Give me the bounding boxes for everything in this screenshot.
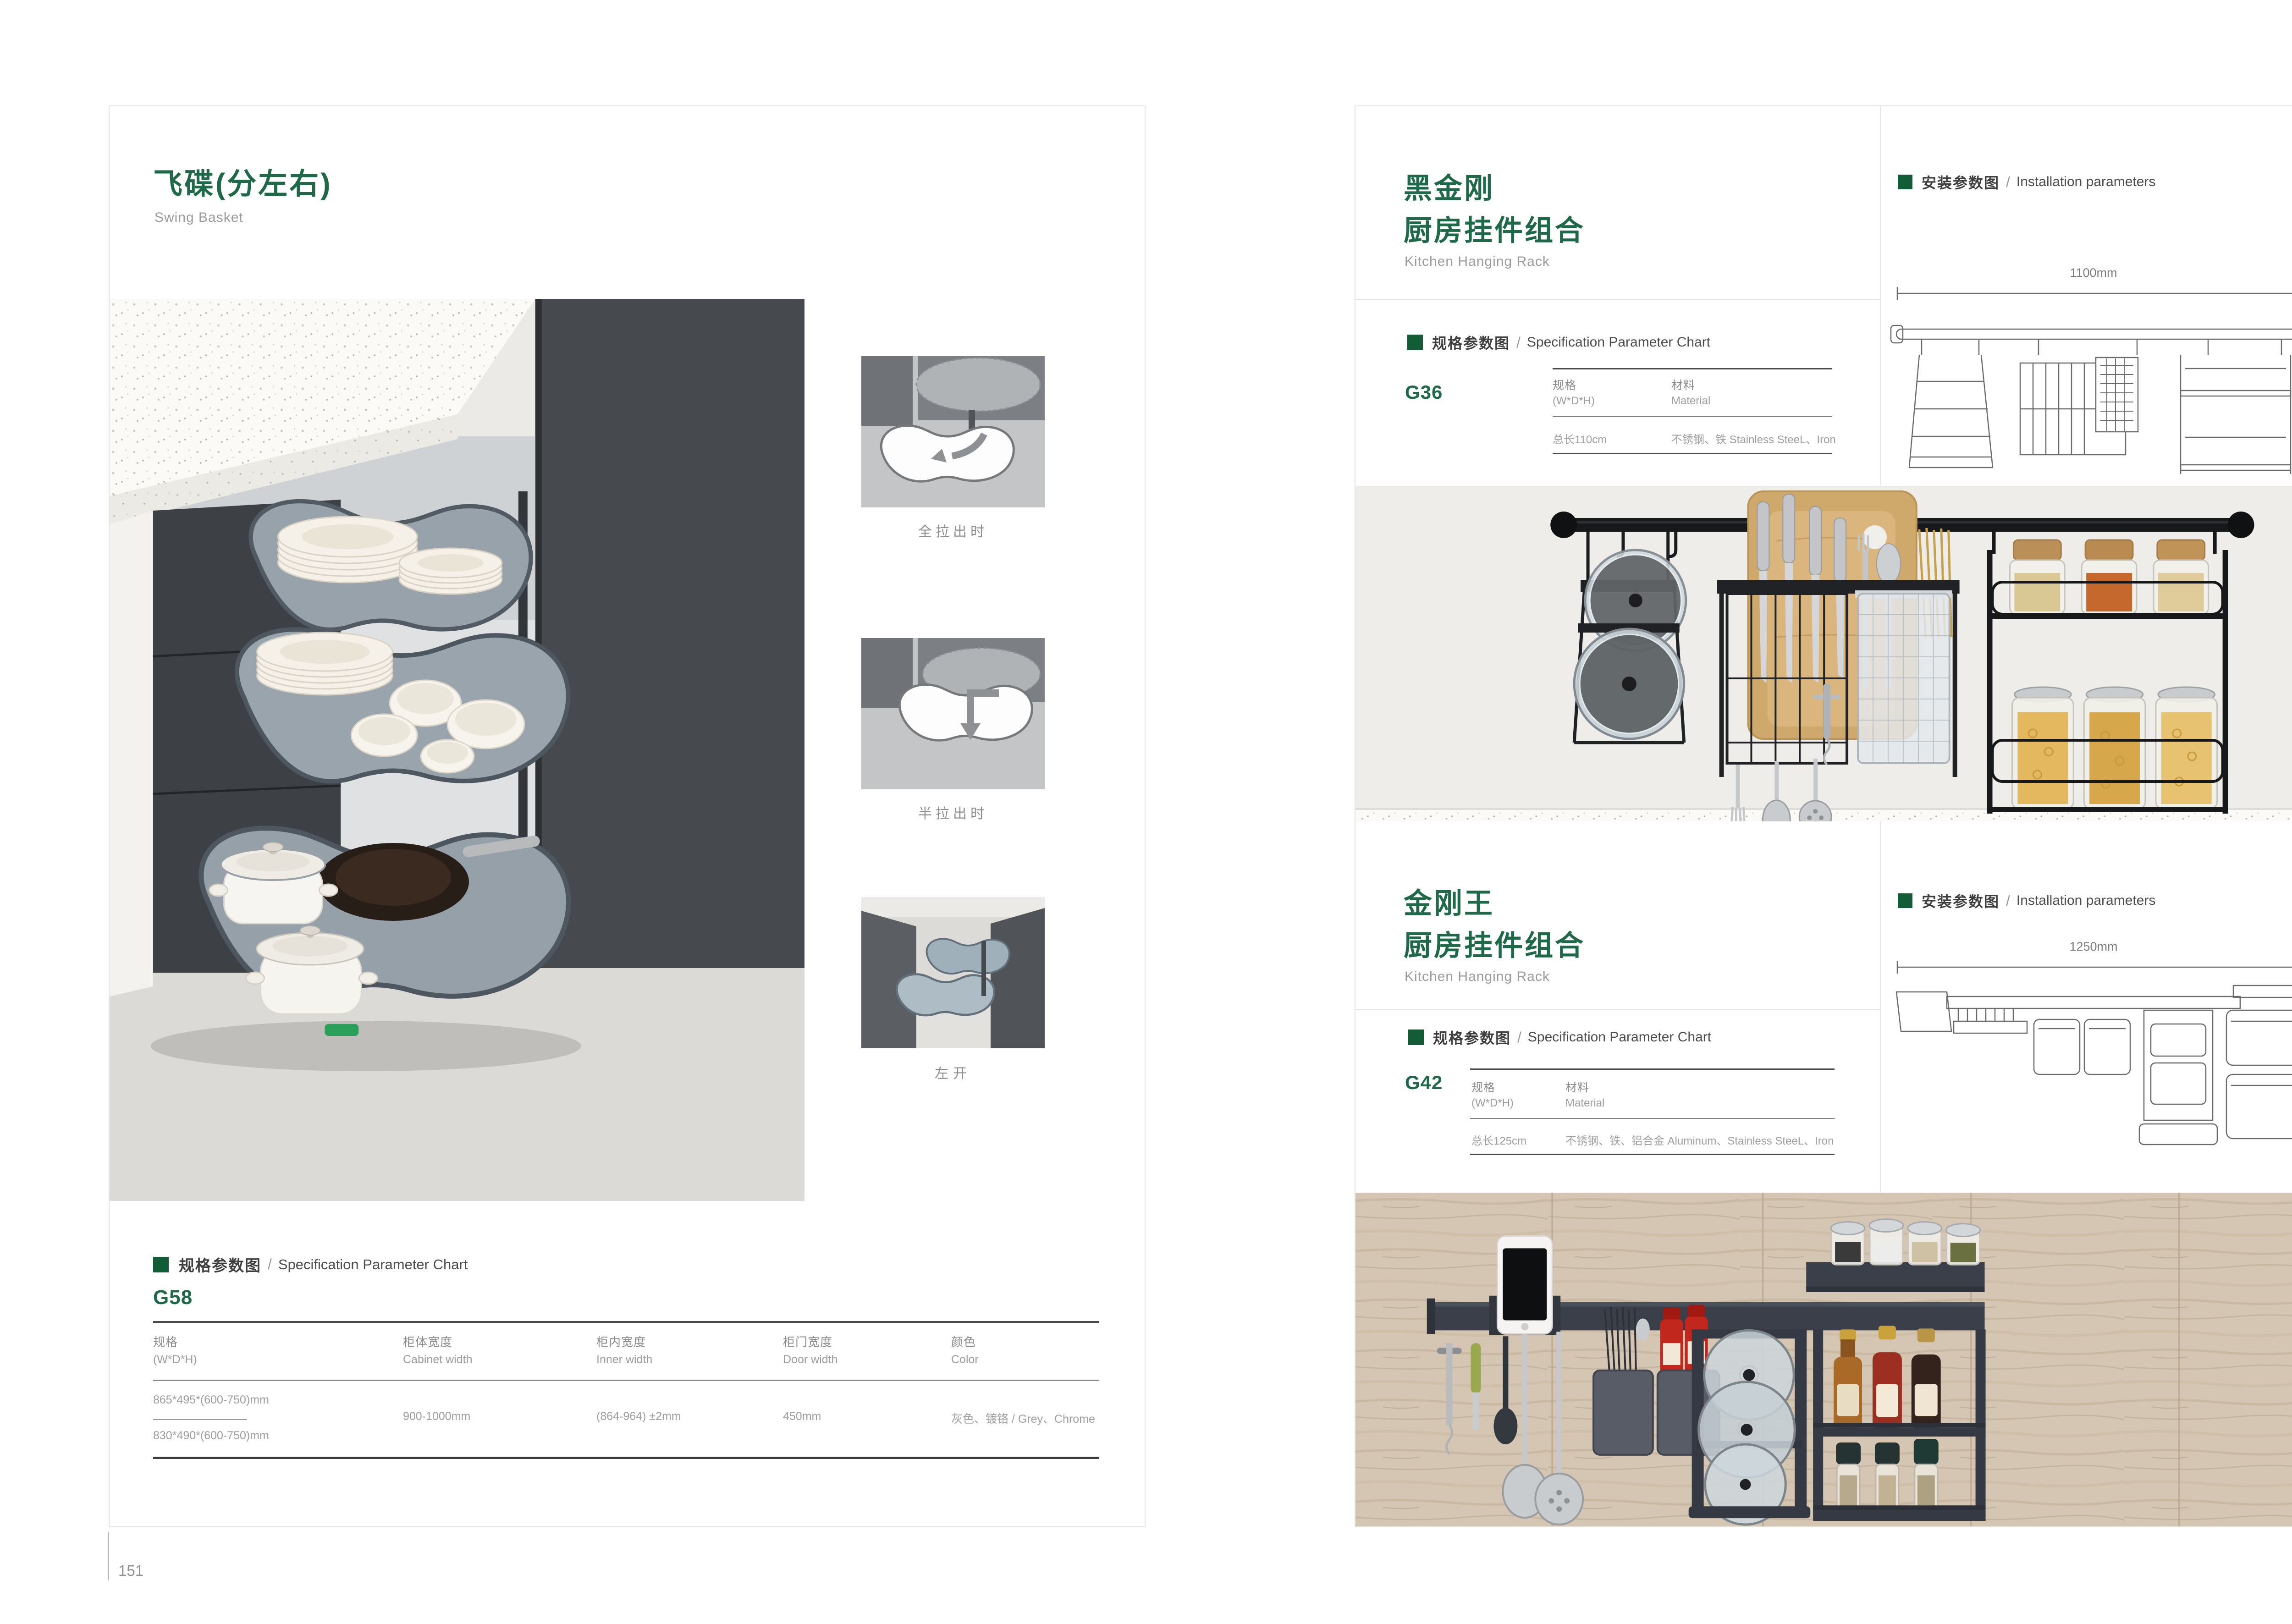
install-heading-zh: 安装参数图 [1922, 171, 2000, 193]
section-bullet-icon [1898, 175, 1912, 189]
heading-separator: / [2006, 892, 2010, 909]
col-header-en: Cabinet width [403, 1353, 472, 1366]
product-subtitle: Kitchen Hanging Rack [1405, 969, 1550, 985]
spec-table: 规格 (W*D*H) 材料 Material 总长110cm 不锈钢、铁 Sta… [1553, 364, 1832, 461]
page-152: 黑金刚 厨房挂件组合 Kitchen Hanging Rack 规格参数图 / … [1355, 105, 2292, 1527]
cell-cabinet-width: 900-1000mm [403, 1410, 470, 1423]
product-code: G36 [1405, 381, 1443, 403]
thumbnail-half-pullout: 半拉出时 [861, 638, 1045, 821]
cell-divider [1355, 299, 1880, 300]
col-header: 柜门宽度 [783, 1333, 832, 1350]
section-bullet-icon [1408, 1029, 1424, 1045]
section-bullet-icon [1898, 893, 1912, 908]
install-drawing [1887, 931, 2292, 1188]
product-title-line2: 厨房挂件组合 [1404, 922, 1585, 963]
section-bullet-icon [153, 1257, 169, 1272]
install-diagram-top: 1100mm 420mm [1887, 216, 2292, 487]
cell-divider [1880, 106, 1881, 486]
thumbnail-caption: 半拉出时 [861, 802, 1045, 822]
install-section-heading: 安装参数图 / Installation parameters [1898, 890, 2155, 911]
col-header-en: Color [951, 1353, 979, 1366]
col-header-en: Inner width [596, 1353, 652, 1366]
product-photo-hanging-rack-black [1355, 486, 2292, 821]
thumbnail-left-open: 左开 [861, 897, 1045, 1099]
page-title: 飞碟(分左右) [153, 160, 332, 203]
swing-basket-scene [110, 299, 804, 1201]
col-header-en: Door width [783, 1353, 838, 1366]
install-heading-en: Installation parameters [2017, 893, 2156, 908]
col-header: 规格 [1471, 1079, 1495, 1095]
heading-separator: / [2006, 174, 2010, 191]
dim-width-label: 1100mm [1887, 266, 2292, 280]
thumbnail-caption: 左开 [861, 1062, 1045, 1082]
spec-section-heading: 规格参数图 / Specification Parameter Chart [1407, 332, 1710, 353]
spec-heading-en: Specification Parameter Chart [1528, 1029, 1711, 1045]
cell-size-b: 830*490*(600-750)mm [153, 1429, 269, 1442]
spec-table: 规格 (W*D*H) 材料 Material 总长125cm 不锈钢、铁、铝合金… [1470, 1065, 1835, 1161]
cell-divider [1880, 821, 1881, 1193]
spec-heading-zh: 规格参数图 [1432, 332, 1510, 353]
cell-material: 不锈钢、铁、铝合金 Aluminum、Stainless SteeL、Iron [1565, 1132, 1834, 1148]
col-header: 规格 [153, 1333, 178, 1350]
cell-size-a: 865*495*(600-750)mm [153, 1393, 269, 1407]
spec-heading-en: Specification Parameter Chart [1527, 335, 1710, 350]
cell-divider [1355, 1009, 1880, 1010]
thumbnail-caption: 全拉出时 [861, 520, 1045, 540]
spec-table: 规格 (W*D*H) 柜体宽度 Cabinet width 柜内宽度 Inner… [153, 1316, 1099, 1468]
product-photo-swing-basket [110, 299, 804, 1201]
spec-heading-zh: 规格参数图 [179, 1253, 261, 1276]
col-header: 颜色 [951, 1333, 976, 1350]
product-title-line1: 黑金刚 [1404, 165, 1494, 206]
footer-rule-left [108, 1532, 109, 1580]
col-header: 柜体宽度 [403, 1333, 452, 1350]
heading-separator: / [268, 1256, 272, 1273]
spec-section-heading: 规格参数图 / Specification Parameter Chart [1408, 1027, 1711, 1048]
col-header: 柜内宽度 [596, 1333, 646, 1350]
cell-inner-width: (864-964) ±2mm [596, 1410, 681, 1423]
page-number-left: 151 [118, 1562, 143, 1580]
spec-heading-en: Specification Parameter Chart [278, 1256, 468, 1273]
cell-spec: 总长125cm [1471, 1132, 1526, 1148]
cell-material: 不锈钢、铁 Stainless SteeL、Iron [1671, 430, 1836, 446]
col-header: 材料 [1565, 1079, 1589, 1095]
page-subtitle: Swing Basket [154, 210, 243, 226]
page-151: 飞碟(分左右) Swing Basket [109, 105, 1146, 1527]
install-section-heading: 安装参数图 / Installation parameters [1898, 171, 2155, 193]
dim-width-label: 1250mm [1887, 940, 2292, 954]
product-subtitle: Kitchen Hanging Rack [1405, 254, 1550, 270]
col-header-en: (W*D*H) [153, 1353, 197, 1366]
col-header-en: (W*D*H) [1471, 1097, 1514, 1110]
cell-spec: 总长110cm [1553, 430, 1607, 446]
spec-section-heading: 规格参数图 / Specification Parameter Chart [153, 1253, 468, 1276]
product-photo-hanging-rack-wood [1355, 1193, 2292, 1526]
product-code: G42 [1405, 1072, 1443, 1094]
install-diagram-bottom: 1250mm 430mm [1887, 931, 2292, 1188]
thumbnail-full-pullout: 全拉出时 [861, 356, 1045, 539]
catalog-spread: 飞碟(分左右) Swing Basket [0, 0, 2292, 1624]
col-header: 材料 [1671, 376, 1695, 393]
col-header-en: Material [1565, 1097, 1604, 1110]
install-heading-zh: 安装参数图 [1922, 890, 2000, 911]
cell-door-width: 450mm [783, 1410, 821, 1423]
col-header: 规格 [1553, 376, 1576, 393]
install-drawing [1887, 216, 2292, 487]
heading-separator: / [1516, 334, 1521, 351]
product-code: G58 [153, 1286, 193, 1309]
section-bullet-icon [1407, 335, 1423, 350]
spec-heading-zh: 规格参数图 [1433, 1027, 1511, 1048]
product-title-line2: 厨房挂件组合 [1404, 207, 1585, 248]
install-heading-en: Installation parameters [2017, 174, 2156, 190]
product-title-line1: 金刚王 [1404, 880, 1494, 921]
heading-separator: / [1517, 1029, 1521, 1046]
cell-color: 灰色、镀铬 / Grey、Chrome [951, 1410, 1095, 1426]
col-header-en: (W*D*H) [1553, 395, 1595, 407]
col-header-en: Material [1671, 395, 1710, 407]
